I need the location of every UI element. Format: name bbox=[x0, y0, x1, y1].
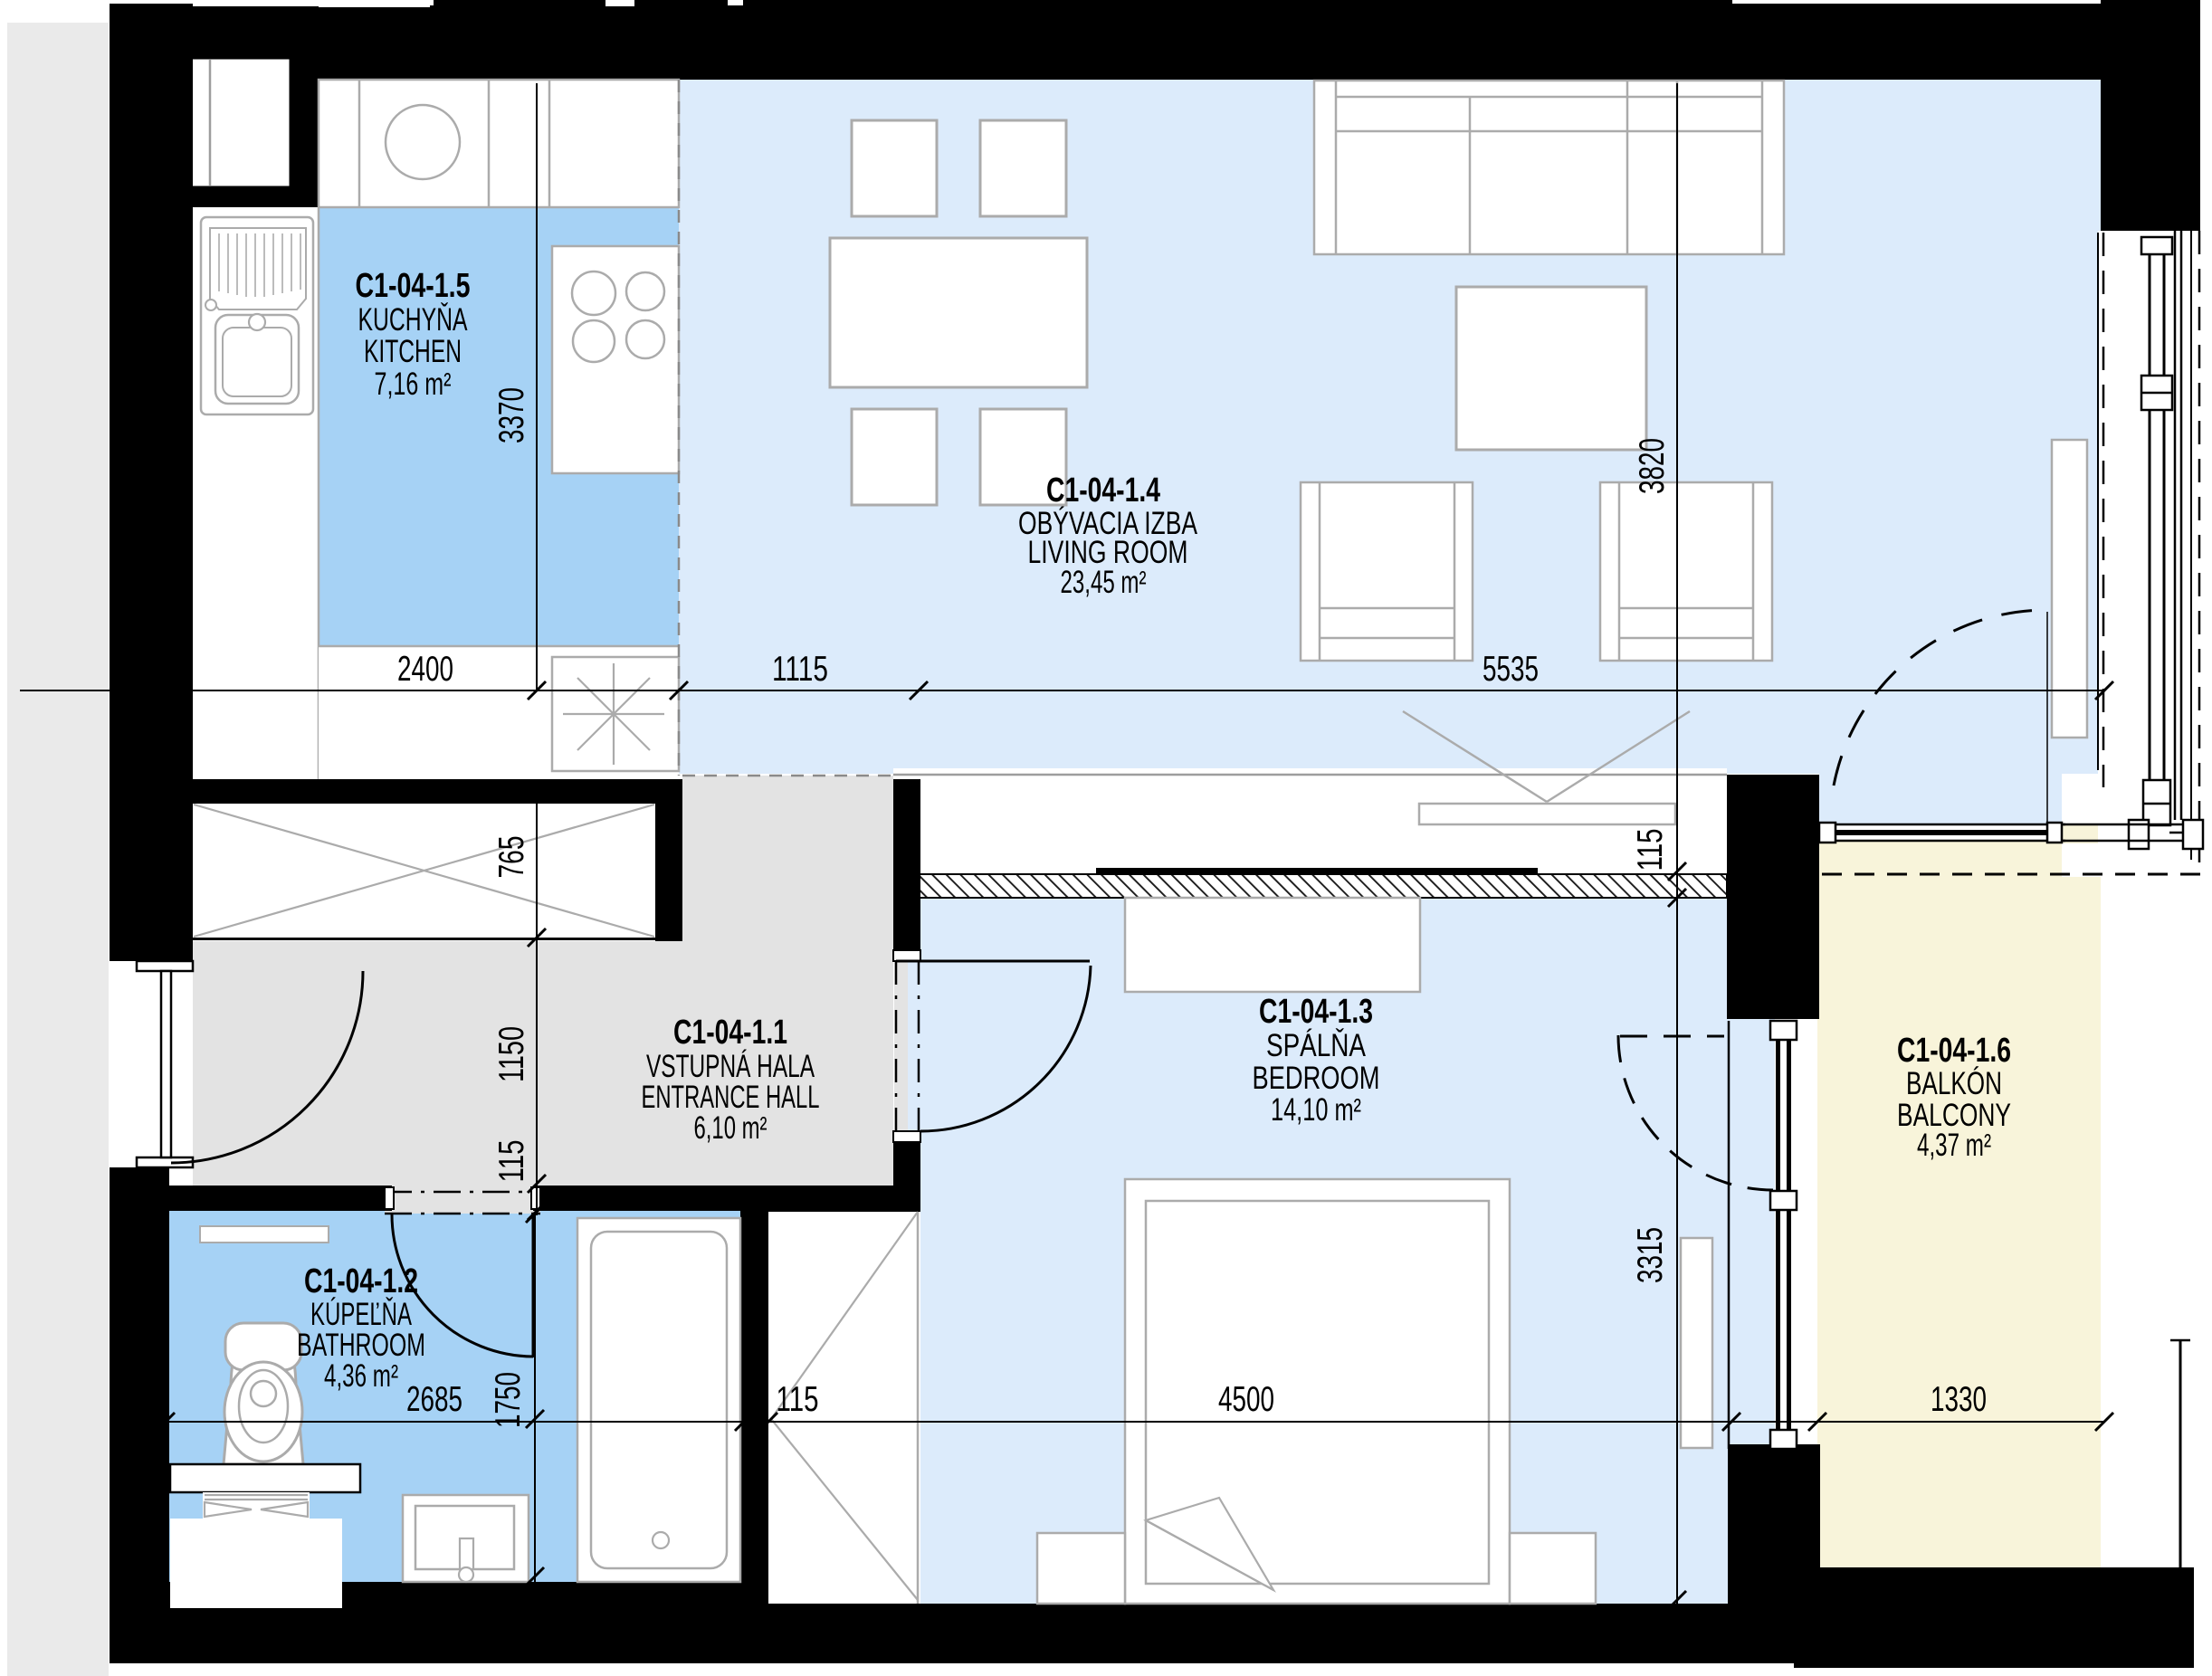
svg-text:5535: 5535 bbox=[1483, 650, 1539, 689]
svg-text:1750: 1750 bbox=[489, 1372, 528, 1428]
svg-text:2685: 2685 bbox=[406, 1380, 462, 1419]
svg-text:7,16 m²: 7,16 m² bbox=[375, 367, 452, 402]
svg-text:C1-04-1.2: C1-04-1.2 bbox=[304, 1262, 418, 1300]
svg-text:C1-04-1.5: C1-04-1.5 bbox=[356, 267, 471, 305]
svg-text:2400: 2400 bbox=[397, 650, 453, 689]
svg-text:1330: 1330 bbox=[1931, 1380, 1987, 1419]
svg-text:KUCHYŇA: KUCHYŇA bbox=[358, 302, 468, 338]
svg-text:4500: 4500 bbox=[1218, 1380, 1274, 1419]
svg-text:3315: 3315 bbox=[1631, 1227, 1670, 1283]
svg-text:1115: 1115 bbox=[772, 650, 828, 689]
svg-text:C1-04-1.6: C1-04-1.6 bbox=[1897, 1032, 2011, 1070]
svg-text:4,36 m²: 4,36 m² bbox=[324, 1358, 398, 1394]
svg-text:4,37 m²: 4,37 m² bbox=[1917, 1128, 1991, 1163]
svg-text:C1-04-1.4: C1-04-1.4 bbox=[1046, 471, 1160, 509]
svg-text:23,45 m²: 23,45 m² bbox=[1061, 565, 1147, 600]
svg-text:KITCHEN: KITCHEN bbox=[364, 334, 462, 369]
svg-text:BEDROOM: BEDROOM bbox=[1253, 1061, 1380, 1096]
svg-text:765: 765 bbox=[492, 836, 531, 879]
svg-text:115: 115 bbox=[777, 1380, 819, 1419]
svg-text:6,10 m²: 6,10 m² bbox=[694, 1110, 768, 1146]
svg-text:BALKÓN: BALKÓN bbox=[1906, 1066, 2002, 1101]
svg-text:3370: 3370 bbox=[492, 387, 531, 443]
svg-text:3820: 3820 bbox=[1633, 438, 1672, 494]
svg-text:1150: 1150 bbox=[492, 1026, 531, 1082]
svg-text:14,10 m²: 14,10 m² bbox=[1271, 1092, 1361, 1128]
svg-text:SPÁLŇA: SPÁLŇA bbox=[1266, 1028, 1367, 1063]
svg-text:115: 115 bbox=[492, 1140, 531, 1183]
svg-text:C1-04-1.3: C1-04-1.3 bbox=[1259, 993, 1373, 1031]
svg-text:115: 115 bbox=[1631, 829, 1670, 871]
svg-text:C1-04-1.1: C1-04-1.1 bbox=[673, 1014, 787, 1052]
